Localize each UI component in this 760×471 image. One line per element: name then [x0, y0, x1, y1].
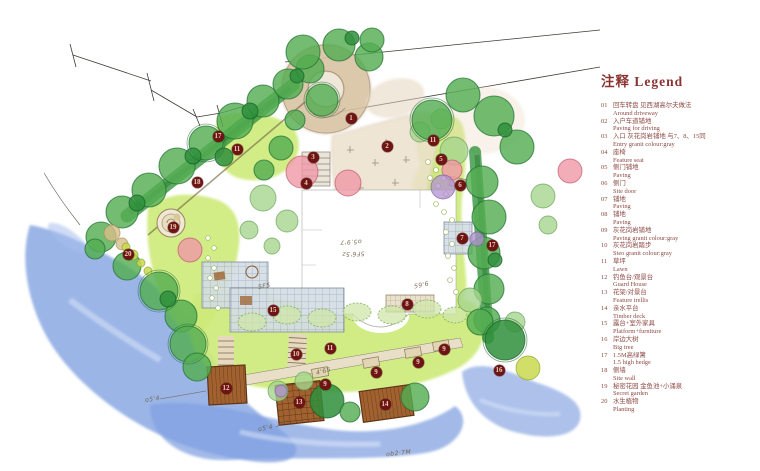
legend-item-number: 04 [601, 149, 611, 157]
legend-item-en: Site door [601, 188, 758, 196]
legend-item-en: Planting [601, 406, 758, 414]
legend-item-en: Big tree [601, 344, 758, 352]
plan-marker-6: 6 [455, 180, 466, 191]
legend-item: 10灰花岗岩踏步Steo granit colour:gray [601, 242, 758, 258]
legend-item-zh: 11草坪 [601, 258, 758, 266]
legend-item: 18侧墙Site wall [601, 367, 758, 383]
legend-item-en: Paving [601, 172, 758, 180]
legend-item: 08铺地Paving [601, 211, 758, 227]
legend-item-zh: 10灰花岗岩踏步 [601, 242, 758, 250]
plan-marker-3: 3 [308, 152, 319, 163]
legend-item: 13花架/对景台Feature trellis [601, 289, 758, 305]
legend-item: 03入口 灰花岗岩铺地 与7、8、15同Entry granit colour:… [601, 133, 758, 149]
legend-item-zh: 15露台+室外家具 [601, 320, 758, 328]
plan-marker-5: 5 [436, 154, 447, 165]
plan-marker-19: 19 [168, 222, 179, 233]
legend-item-en: Feature trellis [601, 297, 758, 305]
legend-item: 05侧门铺地Paving [601, 164, 758, 180]
legend-item-number: 01 [601, 102, 611, 110]
legend-item-zh: 02入户车道铺地 [601, 118, 758, 126]
plan-marker-10: 10 [291, 349, 302, 360]
legend-item: 04座椅Feature seat [601, 149, 758, 165]
legend-item-zh: 06侧门 [601, 180, 758, 188]
legend-item: 14亲水平台Timber deck [601, 305, 758, 321]
legend-item-number: 15 [601, 320, 611, 328]
legend-item-en: Site wall [601, 375, 758, 383]
legend-item-zh: 01回车转盘 见西湖高尔夫做法 [601, 102, 758, 110]
legend-item-number: 08 [601, 211, 611, 219]
legend-item-en: Guard House [601, 281, 758, 289]
legend-item-number: 18 [601, 367, 611, 375]
plan-marker-14: 14 [380, 399, 391, 410]
legend-item-number: 16 [601, 336, 611, 344]
plan-marker-9: 9 [371, 367, 382, 378]
legend-item-number: 06 [601, 180, 611, 188]
legend-item-zh: 18侧墙 [601, 367, 758, 375]
legend-item-zh: 19秘密花园 金鱼池+小涌泉 [601, 383, 758, 391]
legend-item-number: 12 [601, 274, 611, 282]
legend-item-en: Entry granit colour:gray [601, 141, 758, 149]
legend-title: 注释 Legend [601, 70, 758, 90]
legend-item: 02入户车道铺地Paving for driving [601, 118, 758, 134]
legend-item-zh: 16岸边大树 [601, 336, 758, 344]
legend-item-en: Lawn [601, 266, 758, 274]
legend-item-zh: 12钓鱼台/观景台 [601, 274, 758, 282]
legend-item-zh: 05侧门铺地 [601, 164, 758, 172]
plan-marker-2: 2 [382, 141, 393, 152]
legend-item-number: 02 [601, 118, 611, 126]
plan-marker-7: 7 [457, 233, 468, 244]
legend-item-number: 07 [601, 196, 611, 204]
plan-marker-8: 8 [402, 299, 413, 310]
legend-item-number: 13 [601, 289, 611, 297]
plan-marker-1: 1 [346, 113, 357, 124]
legend-panel: 注释 Legend 01回车转盘 见西湖高尔夫做法Around driveway… [601, 70, 758, 414]
plan-marker-18: 18 [192, 177, 203, 188]
legend-item-en: Paving [601, 219, 758, 227]
legend-item-number: 05 [601, 164, 611, 172]
plan-marker-11: 11 [428, 135, 439, 146]
hand-note: o5.9'7 [340, 238, 362, 246]
legend-item: 11草坪Lawn [601, 258, 758, 274]
legend-item: 12钓鱼台/观景台Guard House [601, 274, 758, 290]
plan-marker-17: 17 [487, 240, 498, 251]
legend-item-number: 20 [601, 398, 611, 406]
legend-item: 19秘密花园 金鱼池+小涌泉Secret garden [601, 383, 758, 399]
plan-marker-15: 15 [268, 305, 279, 316]
legend-item: 07铺地Paving [601, 196, 758, 212]
legend-item-list: 01回车转盘 见西湖高尔夫做法Around driveway02入户车道铺地Pa… [601, 102, 758, 414]
legend-item-zh: 13花架/对景台 [601, 289, 758, 297]
hand-note: 5F6'5z [342, 250, 365, 258]
legend-item-number: 17 [601, 352, 611, 360]
plan-marker-4: 4 [301, 178, 312, 189]
legend-item: 20水生植物Planting [601, 398, 758, 414]
legend-item-number: 11 [601, 258, 611, 266]
plan-marker-17: 17 [213, 131, 224, 142]
landscape-plan-sheet: 1234567899991011111112131415161717181920… [0, 0, 760, 471]
plan-marker-9: 9 [439, 344, 450, 355]
legend-item-number: 10 [601, 242, 611, 250]
plan-marker-11: 11 [325, 343, 336, 354]
legend-item-en: Platform+furniture [601, 328, 758, 336]
legend-item-zh: 04座椅 [601, 149, 758, 157]
plan-marker-12: 12 [221, 383, 232, 394]
plan-marker-9: 9 [320, 379, 331, 390]
legend-item-zh: 03入口 灰花岗岩铺地 与7、8、15同 [601, 133, 758, 141]
legend-item-zh: 14亲水平台 [601, 305, 758, 313]
legend-item-zh: 08铺地 [601, 211, 758, 219]
legend-item: 01回车转盘 见西湖高尔夫做法Around driveway [601, 102, 758, 118]
legend-item-en: Steo granit colour:gray [601, 250, 758, 258]
legend-item-en: 1.5 high hedge [601, 359, 758, 367]
plan-marker-20: 20 [123, 249, 134, 260]
legend-item: 09灰花岗岩铺地Paving granit colour:gray [601, 227, 758, 243]
legend-item-number: 19 [601, 383, 611, 391]
legend-item-en: Around driveway [601, 110, 758, 118]
legend-item: 171.5M高绿篱1.5 high hedge [601, 352, 758, 368]
plan-marker-9: 9 [413, 357, 424, 368]
legend-item: 06侧门Site door [601, 180, 758, 196]
legend-item: 16岸边大树Big tree [601, 336, 758, 352]
plan-marker-11: 11 [232, 144, 243, 155]
plan-marker-16: 16 [494, 365, 505, 376]
legend-item-zh: 09灰花岗岩铺地 [601, 227, 758, 235]
legend-item-zh: 07铺地 [601, 196, 758, 204]
legend-item-number: 09 [601, 227, 611, 235]
legend-item-number: 14 [601, 305, 611, 313]
legend-item-en: Paving [601, 203, 758, 211]
legend-item-zh: 171.5M高绿篱 [601, 352, 758, 360]
legend-item-number: 03 [601, 133, 611, 141]
legend-item: 15露台+室外家具Platform+furniture [601, 320, 758, 336]
plan-marker-13: 13 [294, 397, 305, 408]
legend-item-zh: 20水生植物 [601, 398, 758, 406]
